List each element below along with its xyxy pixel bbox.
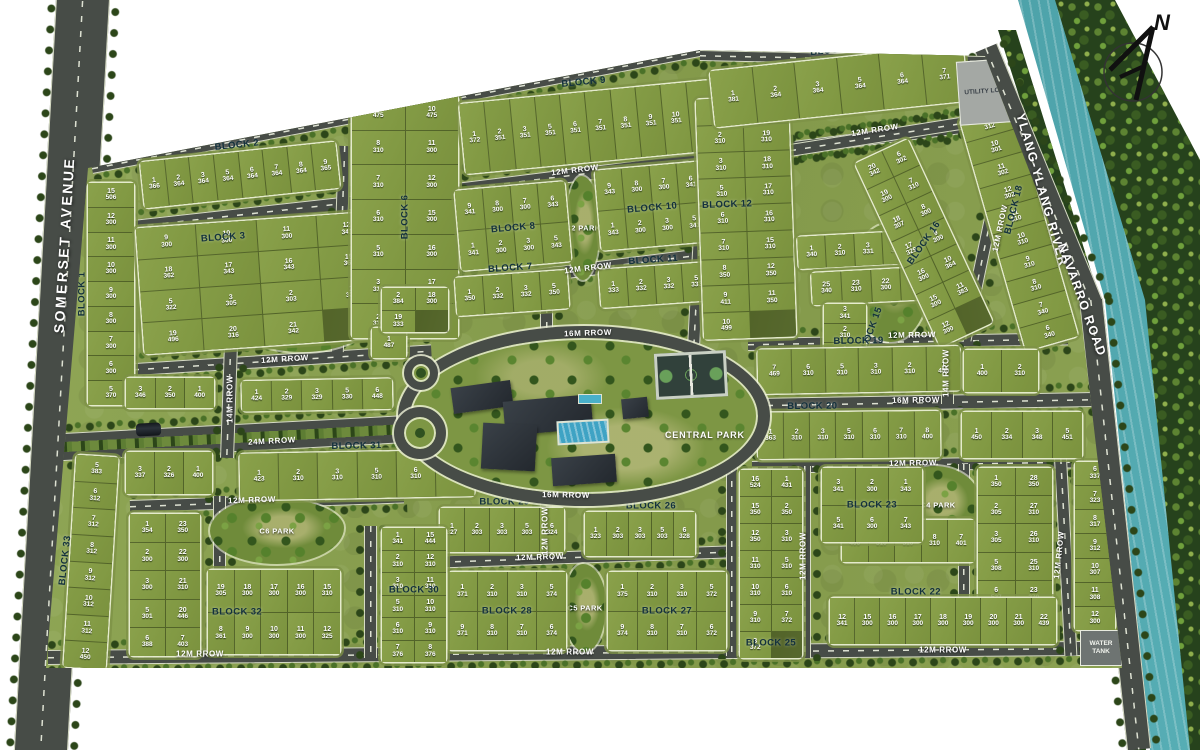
lot[interactable]: 2310	[1002, 350, 1039, 392]
lot[interactable]: 11350	[749, 284, 795, 311]
lot[interactable]: 19310	[743, 123, 789, 150]
lot[interactable]: 15444	[415, 528, 447, 550]
lot-area: 310	[929, 541, 940, 548]
lot[interactable]: 25310	[1016, 553, 1053, 580]
lot[interactable]: 1354	[130, 514, 165, 542]
lot[interactable]: 2350	[772, 497, 803, 523]
lot[interactable]: 12300	[88, 208, 134, 232]
lot-area: 350	[464, 296, 475, 304]
lot[interactable]: 2310	[697, 125, 743, 152]
lot[interactable]: 22300	[871, 268, 901, 301]
lot[interactable]: 5330	[332, 379, 362, 410]
lot[interactable]: 3364	[189, 155, 217, 203]
lot[interactable]: 27310	[1016, 496, 1053, 523]
lot[interactable]: 12350	[740, 524, 771, 550]
lot-area: 300	[867, 487, 878, 494]
lot[interactable]: 10499	[703, 312, 749, 339]
lot[interactable]: 18300	[931, 598, 955, 644]
lot[interactable]: 1333	[599, 268, 628, 308]
lot[interactable]: 12300	[1075, 607, 1115, 630]
lot[interactable]: 5374	[537, 572, 566, 611]
lot[interactable]: 19300	[956, 598, 980, 644]
lot-area: 364	[247, 173, 259, 181]
lot[interactable]: 2310	[825, 234, 854, 267]
lot[interactable]: 12310	[415, 551, 447, 573]
block-block-27: 13752310331053729374831073106372BLOCK 27	[608, 572, 726, 650]
lot[interactable]: 6310	[382, 618, 414, 640]
lot[interactable]: 17300	[906, 598, 930, 644]
lot-area: 350	[781, 510, 792, 517]
lot-area: 305	[991, 510, 1002, 517]
lot[interactable]: 2332	[626, 266, 655, 306]
lot[interactable]: 6310	[862, 412, 888, 458]
lot-area: 310	[1028, 510, 1039, 517]
lot-area: 307	[894, 221, 907, 232]
lot[interactable]: 8312	[70, 535, 113, 563]
lot[interactable]: 5310	[352, 235, 405, 269]
lot[interactable]: 9371	[448, 612, 477, 651]
lot[interactable]: 3310	[810, 412, 836, 458]
lot-area: 310	[844, 435, 855, 442]
lot[interactable]: 11300	[288, 613, 314, 655]
lot[interactable]: 22300	[166, 543, 201, 571]
lot[interactable]: 1375	[608, 572, 637, 611]
lot-area: 332	[663, 284, 674, 292]
lot-grid: 14002310	[964, 350, 1038, 392]
lot[interactable]: 1400	[964, 350, 1001, 392]
lot[interactable]: 2326	[155, 452, 183, 494]
lot-area: 342	[869, 168, 882, 179]
lot[interactable]: 2300	[130, 543, 165, 571]
lot-area: 310	[1017, 238, 1029, 248]
block-block-1: 1550612300113001030093008300730063005370…	[88, 183, 134, 405]
lot-area: 439	[1038, 621, 1049, 628]
road-label: 14M RROW	[226, 375, 235, 423]
lot[interactable]: 7343	[889, 506, 922, 543]
lot[interactable]: 6448	[363, 379, 393, 410]
lot[interactable]: 12450	[64, 641, 107, 669]
lot[interactable]: 1381	[710, 67, 757, 127]
lot-area: 341	[689, 222, 700, 230]
lot[interactable]: 18300	[416, 288, 449, 310]
lot[interactable]: 2303	[607, 512, 628, 556]
lot-area: 301	[142, 614, 153, 621]
lot[interactable]: 5301	[130, 600, 165, 628]
lot-area: 376	[425, 652, 436, 659]
lot[interactable]: 7376	[382, 641, 414, 663]
lot[interactable]: 5303	[515, 508, 539, 552]
lot-area: 300	[988, 621, 999, 628]
lot[interactable]: 3310	[698, 152, 744, 179]
lot[interactable]: 7401	[948, 520, 974, 562]
lot[interactable]: 7310	[508, 612, 537, 651]
lot[interactable]: 1487	[372, 328, 406, 358]
lot[interactable]: 3310	[772, 524, 803, 550]
lot[interactable]: 1431	[772, 470, 803, 496]
lot[interactable]: 1343	[598, 209, 628, 251]
lot[interactable]: 5310	[825, 348, 859, 393]
lot[interactable]: 5343	[541, 222, 571, 264]
lot[interactable]: 1340	[797, 236, 826, 269]
lot[interactable]: 11308	[1075, 583, 1115, 606]
lot[interactable]: 15300	[855, 598, 879, 644]
lot-area: 300	[523, 245, 534, 253]
lot-area: 303	[497, 530, 508, 537]
lot[interactable]: 3341	[824, 304, 866, 323]
lot[interactable]: 11300	[256, 216, 317, 251]
block-block-22: 1234115300163001730018300193002030021300…	[830, 598, 1056, 644]
lot-area: 310	[516, 592, 527, 599]
lot[interactable]: 5383	[75, 455, 118, 483]
lot-area: 307	[1090, 570, 1101, 577]
lot-area: 310	[781, 537, 792, 544]
lot-grid: 1487	[372, 328, 406, 358]
lot-area: 448	[372, 394, 383, 401]
lot-area: 310	[392, 562, 403, 569]
lot[interactable]: 21342	[263, 311, 324, 346]
lot[interactable]: 9365	[312, 142, 340, 190]
lot-area: 310	[293, 476, 304, 483]
lot[interactable]: 5350	[539, 270, 569, 310]
lot-area: 300	[920, 208, 933, 219]
lot[interactable]: 5310	[772, 551, 803, 577]
lot[interactable]: 9310	[415, 618, 447, 640]
lot[interactable]: 5303	[652, 512, 673, 556]
lot[interactable]: 10310	[415, 596, 447, 618]
lot[interactable]: 11312	[65, 614, 108, 642]
lot[interactable]: 9411	[702, 285, 748, 312]
lot[interactable]: 8400	[915, 411, 941, 457]
lot[interactable]: 6388	[130, 628, 165, 656]
lot[interactable]: 8310	[352, 131, 405, 165]
lot[interactable]: 26310	[1016, 524, 1053, 551]
lot-area: 301	[991, 146, 1003, 156]
lot[interactable]: 11300	[406, 131, 459, 165]
lot[interactable]: 5310	[382, 596, 414, 618]
lot[interactable]: 3310	[859, 347, 893, 392]
lot[interactable]: 1341	[382, 528, 414, 550]
car-illustration	[136, 422, 162, 436]
lot[interactable]: 21310	[166, 571, 201, 599]
lot-area: 300	[106, 220, 117, 227]
lot-area: 424	[251, 396, 262, 403]
lot-area: 400	[194, 393, 205, 400]
lot[interactable]: 7364	[263, 147, 291, 195]
lot[interactable]: 8310	[478, 612, 507, 651]
lot[interactable]: 15310	[314, 570, 340, 612]
lot[interactable]: 3303	[490, 508, 514, 552]
lot[interactable]: 17300	[261, 570, 287, 612]
lot[interactable]: 6364	[879, 49, 926, 109]
lot-area: 341	[686, 182, 697, 190]
lot-area: 341	[833, 487, 844, 494]
lot[interactable]: 28350	[1016, 468, 1053, 495]
lot[interactable]: 2332	[483, 274, 513, 314]
lot-area: 346	[135, 393, 146, 400]
lot[interactable]: 5341	[822, 506, 855, 543]
lot-area: 364	[855, 83, 867, 91]
lot-area: 310	[761, 137, 772, 144]
lot[interactable]: 2364	[752, 63, 799, 123]
lot-grid: 333723261400	[126, 452, 212, 494]
lot[interactable]: 19305	[208, 570, 234, 612]
lot[interactable]: 7310	[889, 411, 915, 457]
lot[interactable]: 9300	[88, 282, 134, 306]
lot[interactable]: 2305	[978, 496, 1015, 523]
lot-grid: 1450233433485451	[962, 412, 1082, 458]
lot[interactable]: 5364	[837, 54, 884, 114]
road	[789, 116, 969, 157]
lot[interactable]: 9475	[352, 96, 405, 130]
lot-area: 310	[870, 435, 881, 442]
lot[interactable]: 3329	[302, 380, 332, 411]
lot[interactable]: 6343	[538, 181, 568, 223]
lot[interactable]: 16300	[406, 235, 459, 269]
block-label: BLOCK 20	[787, 400, 837, 411]
lot-area: 348	[1032, 435, 1043, 442]
lot[interactable]: 7372	[772, 605, 803, 631]
lot[interactable]: 8310	[638, 612, 667, 651]
lot[interactable]: 18300	[235, 570, 261, 612]
lot[interactable]: 6300	[88, 356, 134, 380]
lot[interactable]: 25340	[811, 272, 841, 305]
lot[interactable]: 16343	[258, 248, 319, 283]
lot[interactable]: 10307	[1075, 559, 1115, 582]
lot-grid: 1354233502300223003300213105301204466388…	[130, 514, 200, 656]
lot-area: 305	[215, 591, 226, 598]
lot[interactable]: 10312	[67, 588, 110, 616]
block-label: BLOCK 12	[702, 198, 753, 211]
lot[interactable]: 10475	[406, 96, 459, 130]
lot[interactable]: 9312	[68, 561, 111, 589]
lot[interactable]: 2384	[382, 288, 415, 310]
lot-area: 350	[750, 537, 761, 544]
lot-area: 312	[89, 495, 100, 502]
lot[interactable]: 3332	[654, 264, 683, 304]
lot-area: 303	[286, 297, 297, 305]
lot[interactable]: 10310	[740, 578, 771, 604]
lot[interactable]: 11300	[88, 233, 134, 257]
lot[interactable]: 6300	[856, 506, 889, 543]
lot[interactable]: 15350	[740, 497, 771, 523]
lot-area: 300	[106, 245, 117, 252]
lot[interactable]: 20316	[203, 315, 264, 350]
lot[interactable]: 3305	[200, 284, 261, 319]
lot[interactable]: 2303	[261, 279, 322, 314]
lot[interactable]: 8310	[922, 520, 948, 562]
lot[interactable]: 2310	[382, 551, 414, 573]
lot[interactable]: 1350	[455, 276, 485, 316]
lot[interactable]: 1350	[978, 468, 1015, 495]
lot[interactable]: 2334	[992, 412, 1021, 458]
lot[interactable]: 3346	[126, 378, 155, 408]
lot[interactable]: 16524	[740, 470, 771, 496]
lot-area: 310	[791, 436, 802, 443]
lot[interactable]: 8361	[208, 613, 234, 655]
lot[interactable]: 6310	[772, 578, 803, 604]
central-park-oval: CENTRAL PARK	[398, 326, 770, 506]
lot[interactable]: 7312	[72, 508, 115, 536]
lot[interactable]: 7310	[352, 165, 405, 199]
lot[interactable]: 23350	[166, 514, 201, 542]
lot[interactable]: 2303	[465, 508, 489, 552]
lot[interactable]: 7310	[668, 612, 697, 651]
lot-area: 312	[81, 628, 92, 635]
lot-area: 310	[834, 251, 845, 258]
lot[interactable]: 10300	[88, 257, 134, 281]
lot[interactable]: 17343	[198, 252, 259, 287]
lot[interactable]: 6328	[674, 512, 695, 556]
lot[interactable]: 9343	[595, 169, 625, 211]
lot-area: 400	[849, 541, 860, 548]
lot-area: 300	[918, 273, 931, 284]
lot[interactable]: 6374	[537, 612, 566, 651]
lot[interactable]: 3300	[130, 571, 165, 599]
lot[interactable]: 2310	[279, 453, 318, 500]
lot[interactable]: 1400	[185, 378, 214, 408]
lot-area: 300	[295, 634, 306, 641]
lot[interactable]: 1450	[962, 412, 991, 458]
lot[interactable]: 6310	[791, 349, 825, 394]
lot[interactable]: 1400	[184, 452, 212, 494]
lot-area: 300	[1090, 619, 1101, 626]
lot-grid: 9300103001130012341183621734316343153615…	[136, 212, 384, 354]
block-block-11: 1333233233325333BLOCK 11	[599, 262, 711, 308]
lot[interactable]: 15310	[747, 230, 793, 257]
lot[interactable]: 23310	[841, 270, 871, 303]
lot[interactable]: 10300	[261, 613, 287, 655]
lot[interactable]: 15506	[88, 183, 134, 207]
lot[interactable]: 16310	[746, 203, 792, 230]
lot[interactable]: 22439	[1032, 598, 1056, 644]
lot[interactable]: 5322	[140, 288, 201, 323]
block-label: BLOCK 6	[400, 195, 411, 240]
lot[interactable]: 15300	[406, 200, 459, 234]
lot[interactable]: 6310	[352, 200, 405, 234]
lot[interactable]: 5308	[978, 553, 1015, 580]
lot[interactable]: 9341	[455, 189, 485, 231]
lot-area: 303	[522, 530, 533, 537]
lot[interactable]: 2364	[165, 157, 193, 205]
lot[interactable]: 5372	[697, 572, 726, 611]
lot[interactable]: 20300	[981, 598, 1005, 644]
lot-area: 333	[393, 322, 404, 329]
lot[interactable]: 9300	[136, 224, 197, 259]
lot[interactable]: 8364	[287, 144, 315, 192]
lot-area: 303	[635, 534, 646, 541]
lot[interactable]: 6312	[73, 481, 116, 509]
lot[interactable]: 3348	[1023, 412, 1052, 458]
lot[interactable]: 3332	[511, 272, 541, 312]
lot[interactable]: 12300	[406, 165, 459, 199]
lot[interactable]: 12325	[314, 613, 340, 655]
lot[interactable]: 7310	[701, 232, 747, 259]
lot[interactable]: 9374	[608, 612, 637, 651]
lot[interactable]: 12341	[830, 598, 854, 644]
lot-area: 350	[766, 271, 777, 278]
lot[interactable]: 5451	[1053, 412, 1082, 458]
lot-area: 300	[658, 184, 669, 192]
lot-area: 374	[546, 592, 557, 599]
lot[interactable]: 18362	[138, 256, 199, 291]
lot[interactable]: 20446	[166, 600, 201, 628]
lot-area: 351	[595, 126, 606, 134]
lot-area: 451	[1062, 435, 1073, 442]
lot[interactable]: 7300	[510, 184, 540, 226]
lot[interactable]: 2310	[784, 412, 810, 458]
lot[interactable]: 5364	[214, 152, 242, 200]
lot[interactable]: 6364	[238, 150, 266, 198]
road-label: 16M RROW	[542, 490, 590, 500]
lot[interactable]: 19496	[143, 319, 204, 354]
road-label: 12M RROW	[176, 650, 224, 659]
lot[interactable]: 1366	[140, 160, 168, 208]
water-tank: WATER TANK	[1080, 630, 1122, 666]
lot[interactable]: 2350	[156, 378, 185, 408]
lot[interactable]: 1424	[242, 381, 272, 412]
lot[interactable]: 21300	[1007, 598, 1031, 644]
lot-area: 310	[1028, 538, 1039, 545]
lot[interactable]: 8350	[701, 259, 747, 286]
lot-area: 343	[284, 265, 295, 273]
lot-area: 365	[320, 166, 332, 174]
lot[interactable]: 9310	[740, 605, 771, 631]
lot[interactable]: 7469	[758, 349, 792, 394]
lot[interactable]: 1423	[240, 453, 279, 500]
lot[interactable]: 9300	[235, 613, 261, 655]
lot-area: 300	[281, 233, 292, 241]
lot[interactable]: 8376	[415, 641, 447, 663]
block-block-25: 1652414311535023501235033101131053101031…	[740, 470, 802, 658]
lot[interactable]: 3337	[126, 452, 154, 494]
lot[interactable]: 8300	[88, 307, 134, 331]
lot[interactable]: 5310	[836, 412, 862, 458]
lap-pool	[578, 394, 602, 404]
lot[interactable]: 3305	[978, 524, 1015, 551]
lot-area: 340	[821, 288, 832, 295]
block-label: BLOCK 19	[833, 335, 883, 347]
lot-area: 310	[1030, 285, 1042, 295]
lot[interactable]: 2329	[272, 380, 302, 411]
lot[interactable]: 16300	[288, 570, 314, 612]
block-block-7: 1350233233325350BLOCK 7	[455, 270, 569, 316]
lot[interactable]: 18310	[744, 150, 790, 177]
lot[interactable]: 1323	[585, 512, 606, 556]
lot-grid: 1234115300163001730018300193002030021300…	[830, 598, 1056, 644]
lot-area: 323	[590, 534, 601, 541]
lot[interactable]: 1371	[448, 572, 477, 611]
lot[interactable]: 12350	[748, 257, 794, 284]
lot[interactable]: 5310	[357, 451, 396, 498]
lot[interactable]: 16300	[880, 598, 904, 644]
lot[interactable]: 2310	[893, 347, 927, 392]
lot[interactable]: 11310	[740, 551, 771, 577]
lot-grid: 1475204902310193103310183105310173106310…	[696, 96, 796, 339]
lot-area: 423	[254, 477, 265, 484]
lot-area: 300	[106, 369, 117, 376]
lot[interactable]: 3331	[854, 233, 883, 266]
lot[interactable]: 1341	[458, 229, 488, 271]
lot-area: 300	[492, 207, 503, 215]
lot[interactable]: 3303	[629, 512, 650, 556]
road	[726, 466, 738, 656]
lot-area: 310	[425, 562, 436, 569]
lot[interactable]: 7300	[88, 332, 134, 356]
lot[interactable]: 6372	[697, 612, 726, 651]
lot[interactable]: 19333	[382, 311, 415, 333]
lot[interactable]: 3364	[794, 58, 841, 118]
lot[interactable]: 3310	[318, 452, 357, 499]
